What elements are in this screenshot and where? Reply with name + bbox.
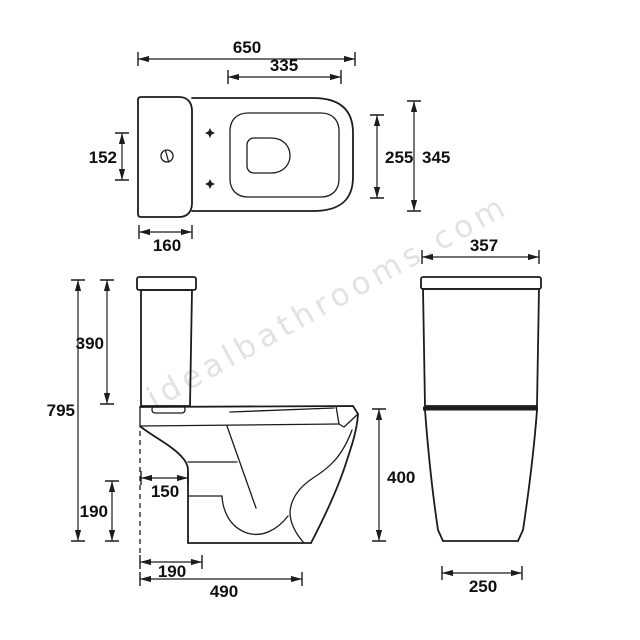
dim-label: 190	[158, 562, 186, 581]
dim-label: 357	[470, 236, 498, 255]
dim-rear-base-width: 250	[442, 566, 522, 596]
side-cistern-body	[141, 290, 192, 406]
dim-label: 160	[153, 236, 181, 255]
dim-side-outlet-setback: 190	[140, 555, 202, 581]
dim-label: 150	[151, 482, 179, 501]
plan-hinge-star-icon	[205, 179, 215, 189]
side-view: 795 390 150 190	[47, 277, 358, 601]
rear-cistern-lid	[421, 277, 541, 289]
dim-label: 250	[469, 577, 497, 596]
dim-label: 400	[387, 468, 415, 487]
dim-rear-pan-height: 400	[372, 409, 415, 541]
dim-label: 190	[80, 502, 108, 521]
dim-plan-cistern-depth: 160	[139, 225, 192, 255]
side-bowl-back-s-curve	[290, 430, 352, 543]
dim-side-cistern-height: 390	[76, 280, 114, 404]
dim-label: 490	[210, 582, 238, 601]
side-trap-u-curve	[222, 496, 288, 534]
dim-side-pedestal-setback: 150	[141, 471, 188, 501]
dim-plan-overall-length: 650	[138, 38, 355, 66]
plan-view: 650 335 152 255	[89, 38, 451, 255]
dim-label: 650	[233, 38, 261, 57]
dim-label: 795	[47, 401, 75, 420]
dim-side-pedestal-base-height: 190	[80, 481, 119, 541]
dim-label: 335	[270, 56, 298, 75]
dim-rear-cistern-width: 357	[422, 236, 539, 264]
rear-pan-right-edge	[518, 410, 537, 541]
rear-cistern-body	[423, 289, 539, 406]
dim-plan-flush-button-span: 152	[89, 133, 129, 180]
dim-label: 152	[89, 148, 117, 167]
dim-label: 390	[76, 334, 104, 353]
plan-flush-button-line	[166, 151, 169, 162]
dim-plan-bowl-opening-width: 255	[370, 115, 413, 198]
side-cistern-lid	[137, 277, 196, 290]
rear-pan-left-edge	[425, 410, 443, 541]
dim-plan-seat-cutout-length: 335	[228, 56, 341, 84]
rear-view: 357 400 250	[372, 236, 541, 596]
side-seat-mid-line	[230, 408, 334, 412]
toilet-dimension-drawing: 650 335 152 255	[0, 0, 640, 640]
dim-plan-pan-width: 345	[407, 101, 450, 211]
side-bowl-diagonal-line	[227, 426, 256, 508]
side-pan-rim-line	[141, 424, 339, 426]
dim-label: 255	[385, 148, 413, 167]
plan-hinge-star-icon	[205, 128, 215, 138]
dim-label: 345	[422, 148, 450, 167]
technical-drawing-page: idealbathrooms.com	[0, 0, 640, 640]
plan-cistern-outline	[138, 97, 192, 217]
plan-bowl-shape	[247, 138, 290, 173]
